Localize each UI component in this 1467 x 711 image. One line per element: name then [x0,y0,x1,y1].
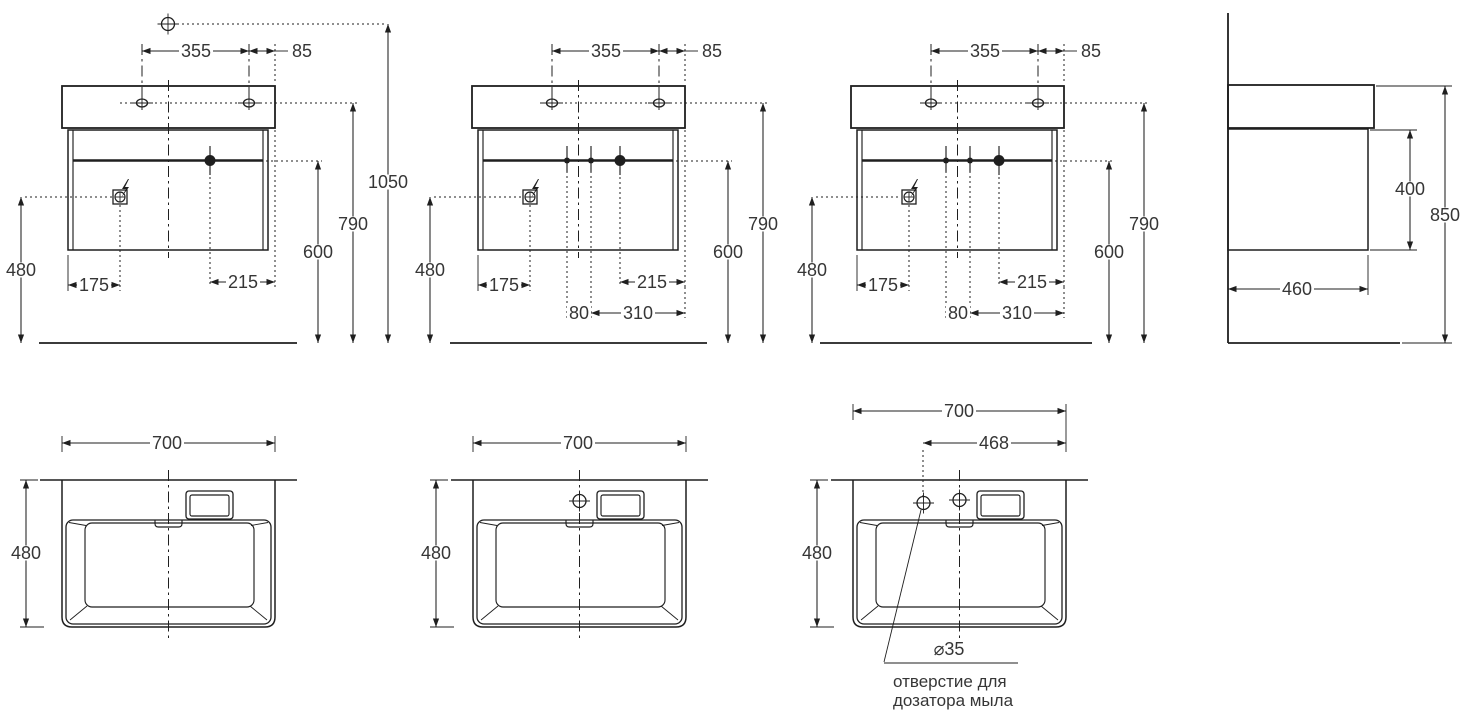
front-c-dim-600-label: 600 [1094,242,1124,262]
soap-dispenser-note-line1: отверстие для [893,672,1007,691]
side-dim-400-label: 400 [1395,179,1425,199]
top-view-b: 700 480 [419,433,708,639]
front-c-dim-175-label: 175 [868,275,898,295]
wall-fixing-point [158,14,179,35]
top-b-dim-480-label: 480 [421,543,451,563]
top-view-c: 700 468 480 ⌀35 отверстие для дозатора м… [800,401,1088,710]
front-c-dim-480-label: 480 [797,260,827,280]
front-a-dim-1050-label: 1050 [368,172,408,192]
cabinet-side-outline [1228,129,1368,250]
front-a-dim-480-label: 480 [6,260,36,280]
top-c-hole-diameter-label: ⌀35 [934,639,965,659]
front-a-dim-215-label: 215 [228,272,258,292]
soap-dispenser-note-line2: дозатора мыла [893,691,1014,710]
washbasin-side-outline [1228,85,1374,128]
front-b-dim-600-label: 600 [713,242,743,262]
top-a-dim-700-label: 700 [152,433,182,453]
front-a-dim-175-label: 175 [79,275,109,295]
front-b-dim-310-label: 310 [623,303,653,323]
front-b-dim-80-label: 80 [569,303,589,323]
front-c-dim-80-label: 80 [948,303,968,323]
top-c-dim-700-label: 700 [944,401,974,421]
top-a-dim-480-label: 480 [11,543,41,563]
tap-hole [569,491,590,512]
technical-drawing-sheet: 355 85 1050 790 600 480 175 215 [0,0,1467,711]
front-b-dim-355-label: 355 [591,41,621,61]
front-b-dim-480-label: 480 [415,260,445,280]
side-dim-850-label: 850 [1430,205,1460,225]
front-b-dim-85-label: 85 [702,41,722,61]
side-view: 400 850 460 [1228,13,1462,343]
front-a-dim-790-label: 790 [338,214,368,234]
front-c-dim-355-label: 355 [970,41,1000,61]
front-b-dim-175-label: 175 [489,275,519,295]
front-view-c: 355 85 790 600 480 175 215 80 310 [795,41,1161,343]
front-view-b: 355 85 790 600 480 175 215 80 310 [413,41,780,343]
front-a-dim-355-label: 355 [181,41,211,61]
front-view-a: 355 85 1050 790 600 480 175 215 [4,14,409,344]
tap-hole [949,490,970,511]
vanity-technical-drawing: 355 85 1050 790 600 480 175 215 [0,0,1467,711]
leader-line [884,510,921,662]
front-c-dim-310-label: 310 [1002,303,1032,323]
front-c-dim-85-label: 85 [1081,41,1101,61]
front-b-dim-790-label: 790 [748,214,778,234]
front-c-dim-215-label: 215 [1017,272,1047,292]
side-dim-460-label: 460 [1282,279,1312,299]
front-a-dim-85-label: 85 [292,41,312,61]
top-view-a: 700 480 [9,433,297,639]
front-b-dim-215-label: 215 [637,272,667,292]
top-c-dim-480-label: 480 [802,543,832,563]
front-a-dim-600-label: 600 [303,242,333,262]
top-c-dim-468-label: 468 [979,433,1009,453]
front-c-dim-790-label: 790 [1129,214,1159,234]
top-b-dim-700-label: 700 [563,433,593,453]
